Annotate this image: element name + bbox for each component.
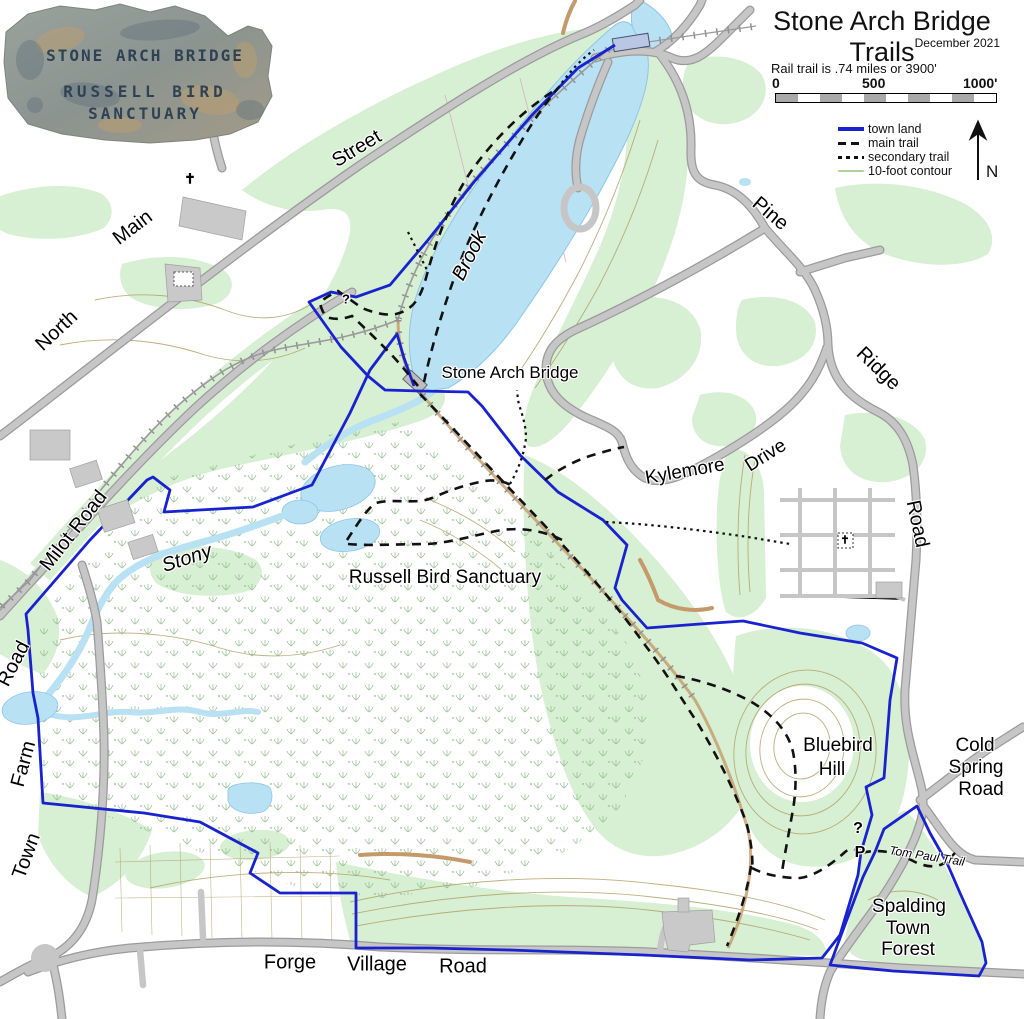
- sign-line-2: RUSSELL BIRD: [0, 82, 290, 101]
- scale-label-0: 0: [772, 75, 780, 91]
- road-junction: [31, 944, 59, 972]
- scale-label-1000: 1000': [963, 75, 997, 91]
- scale-segment: [776, 94, 798, 102]
- sign-line-1: STONE ARCH BRIDGE: [0, 46, 290, 65]
- scale-label-500: 500: [862, 75, 885, 91]
- legend-row-main-trail: main trail: [838, 136, 952, 150]
- sanctuary-sign: STONE ARCH BRIDGE RUSSELL BIRD SANCTUARY: [0, 0, 290, 150]
- legend-row-town-land: town land: [838, 122, 952, 136]
- scale-bar: [775, 93, 997, 103]
- scale-segment: [886, 94, 908, 102]
- town-land-swatch: [838, 122, 864, 136]
- map-date: December 2021: [860, 36, 1000, 50]
- legend-label: main trail: [868, 136, 919, 150]
- scale-segment: [820, 94, 842, 102]
- scale-segment: [908, 94, 930, 102]
- legend-label: town land: [868, 122, 922, 136]
- north-arrow: N: [962, 122, 1006, 184]
- scale-segment: [974, 94, 996, 102]
- legend-row-contour: 10-foot contour: [838, 164, 952, 178]
- main-trail-swatch: [838, 136, 864, 150]
- trail-map-page: NorthMainStreetMilot RoadStonyBrookStone…: [0, 0, 1024, 1019]
- scale-segment: [842, 94, 864, 102]
- cemetery-plot: [838, 533, 853, 548]
- contour-swatch: [838, 164, 864, 178]
- dotted-building: [174, 272, 193, 286]
- secondary-trail-swatch: [838, 150, 864, 164]
- sign-line-3: SANCTUARY: [0, 104, 290, 123]
- scale-segment: [952, 94, 974, 102]
- legend-label: 10-foot contour: [868, 164, 952, 178]
- legend: town land main trail secondary trail 10-…: [838, 122, 952, 178]
- scale-segment: [864, 94, 886, 102]
- north-label: N: [986, 162, 998, 182]
- legend-label: secondary trail: [868, 150, 949, 164]
- legend-row-secondary-trail: secondary trail: [838, 150, 952, 164]
- scale-segment: [930, 94, 952, 102]
- rail-trail-note: Rail trail is .74 miles or 3900': [771, 61, 937, 76]
- scale-segment: [798, 94, 820, 102]
